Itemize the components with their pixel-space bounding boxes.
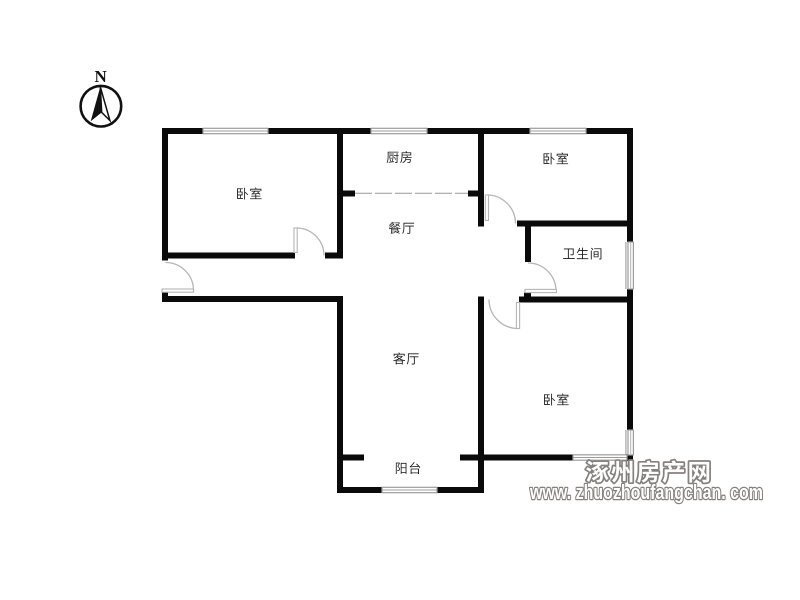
svg-text:N: N: [95, 67, 108, 86]
svg-text:www. zhuozhoufangchan. com: www. zhuozhoufangchan. com: [529, 481, 763, 504]
